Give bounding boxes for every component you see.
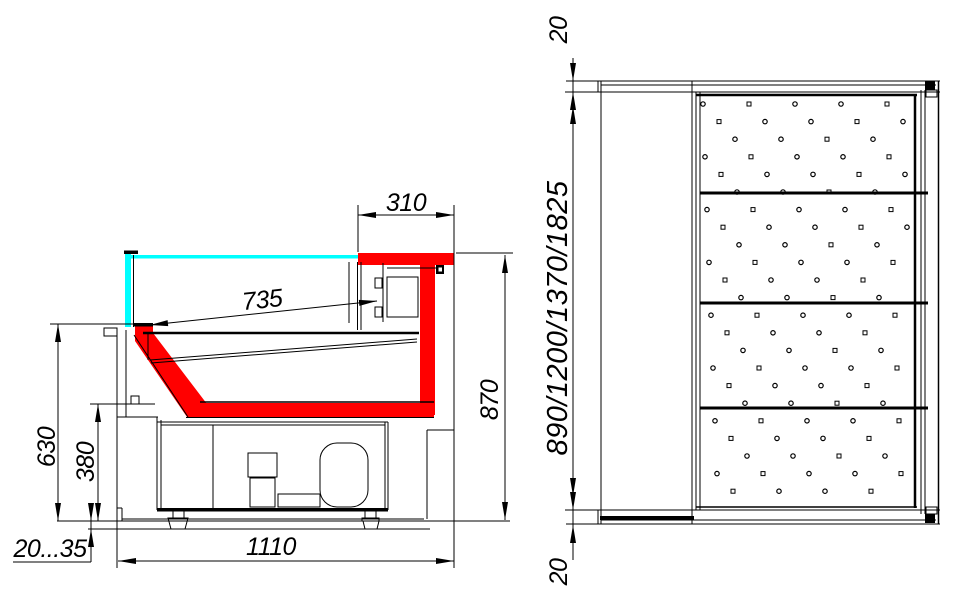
technical-drawing-canvas: 310 735 870 630 380 (0, 0, 953, 605)
front-rail-bar (600, 516, 694, 520)
corner-block-bottom (925, 514, 935, 523)
bumper-fitting (131, 396, 139, 404)
dimension-630: 630 (33, 324, 137, 521)
dim-20-top-label: 20 (545, 16, 573, 44)
dimension-310: 310 (358, 189, 454, 252)
top-view: 20 890/1200/1370/1825 20 (542, 16, 940, 586)
dim-735-label: 735 (241, 284, 285, 316)
niche-clip-top (375, 278, 382, 288)
dimension-1110: 1110 (118, 533, 454, 564)
machine-tray (278, 494, 320, 507)
red-profile (135, 253, 454, 417)
red-deck-bottom (187, 403, 434, 417)
side-view: 310 735 870 630 380 (13, 189, 513, 568)
red-counter-top (358, 253, 454, 265)
dimension-735: 735 (150, 284, 377, 326)
dimension-20-bottom: 20 (545, 492, 600, 586)
dim-630-label: 630 (33, 426, 61, 467)
dim-310-label: 310 (386, 189, 427, 217)
machine-compartment (157, 417, 388, 512)
red-back-panel (420, 263, 435, 415)
dimension-lengths: 890/1200/1370/1825 (542, 106, 576, 496)
machine-box-upper (248, 453, 277, 477)
dim-lengths-label: 890/1200/1370/1825 (542, 180, 574, 455)
machine-box-lower (250, 478, 275, 507)
dim-380-label: 380 (72, 441, 100, 482)
front-glass-pane (125, 253, 131, 327)
technical-drawing-page: 310 735 870 630 380 (0, 0, 953, 605)
glass-top-clamp (124, 251, 138, 255)
dim-20-bottom-label: 20 (545, 558, 573, 586)
dimension-870: 870 (476, 255, 508, 520)
compressor (320, 443, 368, 507)
dim-870-label: 870 (476, 379, 504, 420)
corner-block-top (925, 81, 935, 90)
machine-floor-plate (157, 508, 388, 512)
niche-clip-bottom (375, 307, 382, 317)
dim-1110-label: 1110 (246, 533, 297, 561)
front-rim-fitting (104, 328, 117, 336)
red-front-slope (135, 325, 207, 417)
dimension-leg-adjust: 20...35 (13, 503, 94, 563)
dim-leg-adjust-label: 20...35 (13, 535, 88, 563)
rear-niche-box (387, 277, 418, 317)
dimension-380: 380 (72, 404, 155, 521)
adjustable-foot-right (362, 511, 379, 529)
perforated-panel (701, 102, 909, 494)
top-glass-shelf (131, 255, 358, 259)
